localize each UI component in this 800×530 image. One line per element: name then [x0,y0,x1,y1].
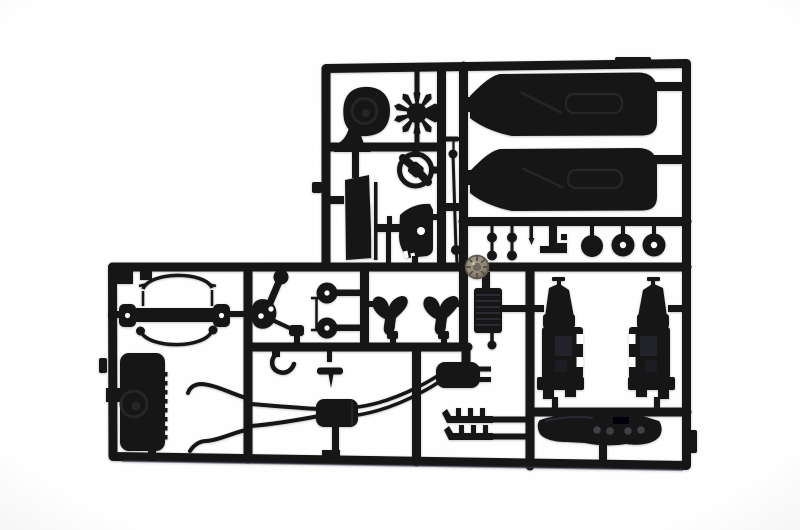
seat-hole [417,227,425,235]
gate-nub-left-lower [99,358,107,373]
photo-stage [0,0,800,530]
gate-nub-right [688,430,697,453]
gate-nub-left [312,182,322,193]
metal-screw [466,256,489,279]
gate-nub-top [615,57,651,66]
backrest-gap-highlight [371,205,374,258]
mould-tab-2 [140,270,152,280]
mould-tab-1 [113,271,133,284]
door-panel-lower [464,148,687,211]
door-panel-upper [464,73,687,137]
sprue-photo [0,0,800,530]
